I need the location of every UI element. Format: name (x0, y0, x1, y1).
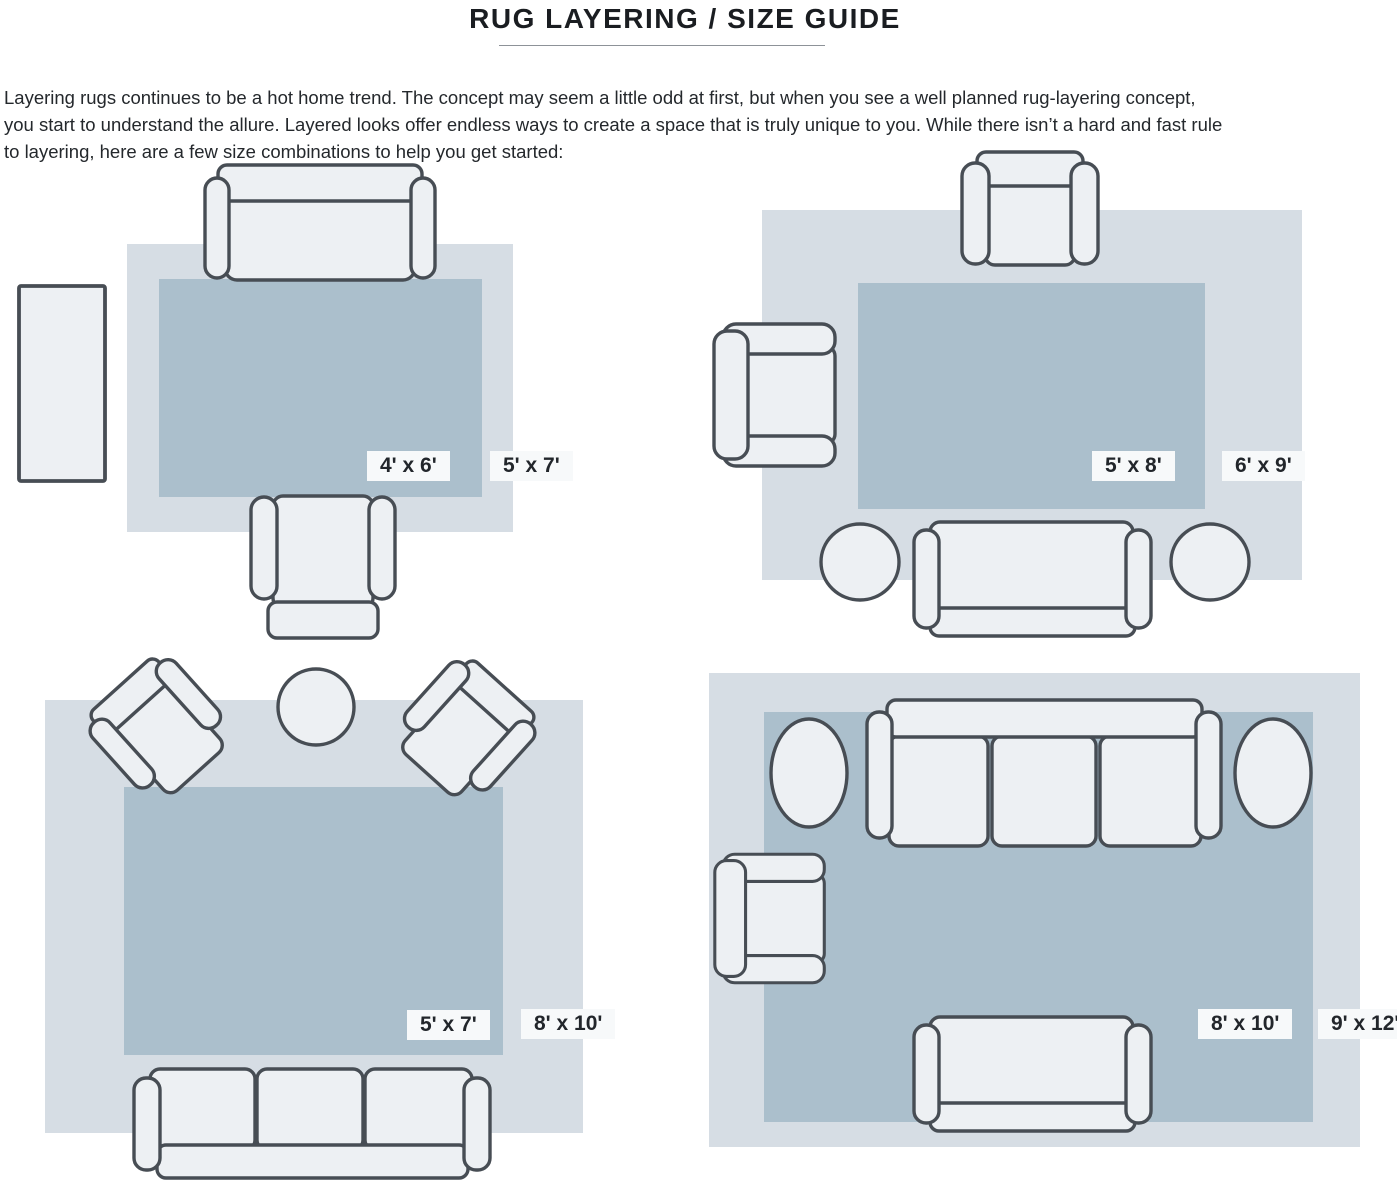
rug-size-label-inner: 8' x 10' (1198, 1009, 1292, 1039)
round-side-table-top-view (1168, 521, 1252, 603)
rug-size-label-outer: 8' x 10' (521, 1009, 615, 1039)
loveseat-top-view (912, 1015, 1153, 1133)
oval-side-table-top-view (768, 716, 850, 830)
rug-size-guide-page: RUG LAYERING / SIZE GUIDE Layering rugs … (0, 0, 1397, 1183)
title-divider (499, 45, 825, 46)
oval-side-table-top-view (1232, 716, 1314, 830)
console-table-top-view (17, 284, 107, 483)
rug-size-label-inner: 5' x 7' (407, 1010, 490, 1040)
sofa-top-view (203, 163, 437, 283)
sofa-top-view (912, 520, 1153, 638)
armchair-top-view (960, 150, 1100, 268)
armchair-top-view (248, 493, 398, 640)
accent-chair-top-view (712, 322, 838, 468)
rug-size-label-outer: 6' x 9' (1222, 451, 1305, 481)
rug-size-label-outer: 9' x 12' (1318, 1009, 1397, 1039)
intro-line: Layering rugs continues to be a hot home… (4, 84, 1222, 111)
page-title: RUG LAYERING / SIZE GUIDE (0, 3, 1370, 35)
accent-chair-top-view (713, 849, 827, 988)
rug-size-label-inner: 4' x 6' (367, 451, 450, 481)
round-side-table-top-view (818, 521, 902, 603)
three-seat-sofa-top-view (132, 1066, 492, 1180)
rug-size-label-inner: 5' x 8' (1092, 451, 1175, 481)
intro-line: you start to understand the allure. Laye… (4, 111, 1222, 138)
three-seat-sofa-top-view (865, 698, 1223, 848)
round-table-top-view (275, 666, 357, 748)
rug-size-label-outer: 5' x 7' (490, 451, 573, 481)
